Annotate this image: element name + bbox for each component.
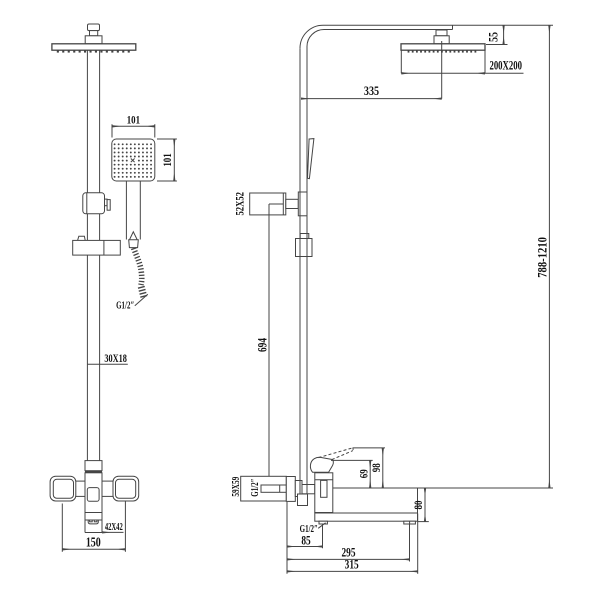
svg-text:101: 101	[162, 153, 175, 166]
svg-text:200X200: 200X200	[489, 59, 522, 73]
svg-text:788-1210: 788-1210	[535, 237, 549, 278]
svg-text:G1/2″: G1/2″	[249, 478, 261, 496]
svg-text:30X18: 30X18	[104, 353, 127, 366]
svg-text:59X59: 59X59	[230, 476, 242, 496]
svg-text:42X42: 42X42	[105, 521, 123, 533]
svg-text:G1/2″: G1/2″	[116, 299, 134, 311]
svg-text:335: 335	[364, 84, 379, 98]
svg-text:52X52: 52X52	[235, 192, 248, 215]
svg-text:55: 55	[487, 32, 500, 42]
svg-text:101: 101	[127, 114, 140, 127]
svg-text:69: 69	[358, 469, 370, 478]
svg-text:G1/2″: G1/2″	[300, 523, 318, 535]
svg-text:694: 694	[256, 338, 270, 352]
svg-text:98: 98	[371, 463, 383, 472]
svg-text:80: 80	[413, 501, 425, 510]
svg-text:150: 150	[86, 534, 101, 550]
svg-text:85: 85	[301, 534, 311, 548]
svg-text:315: 315	[345, 558, 359, 572]
